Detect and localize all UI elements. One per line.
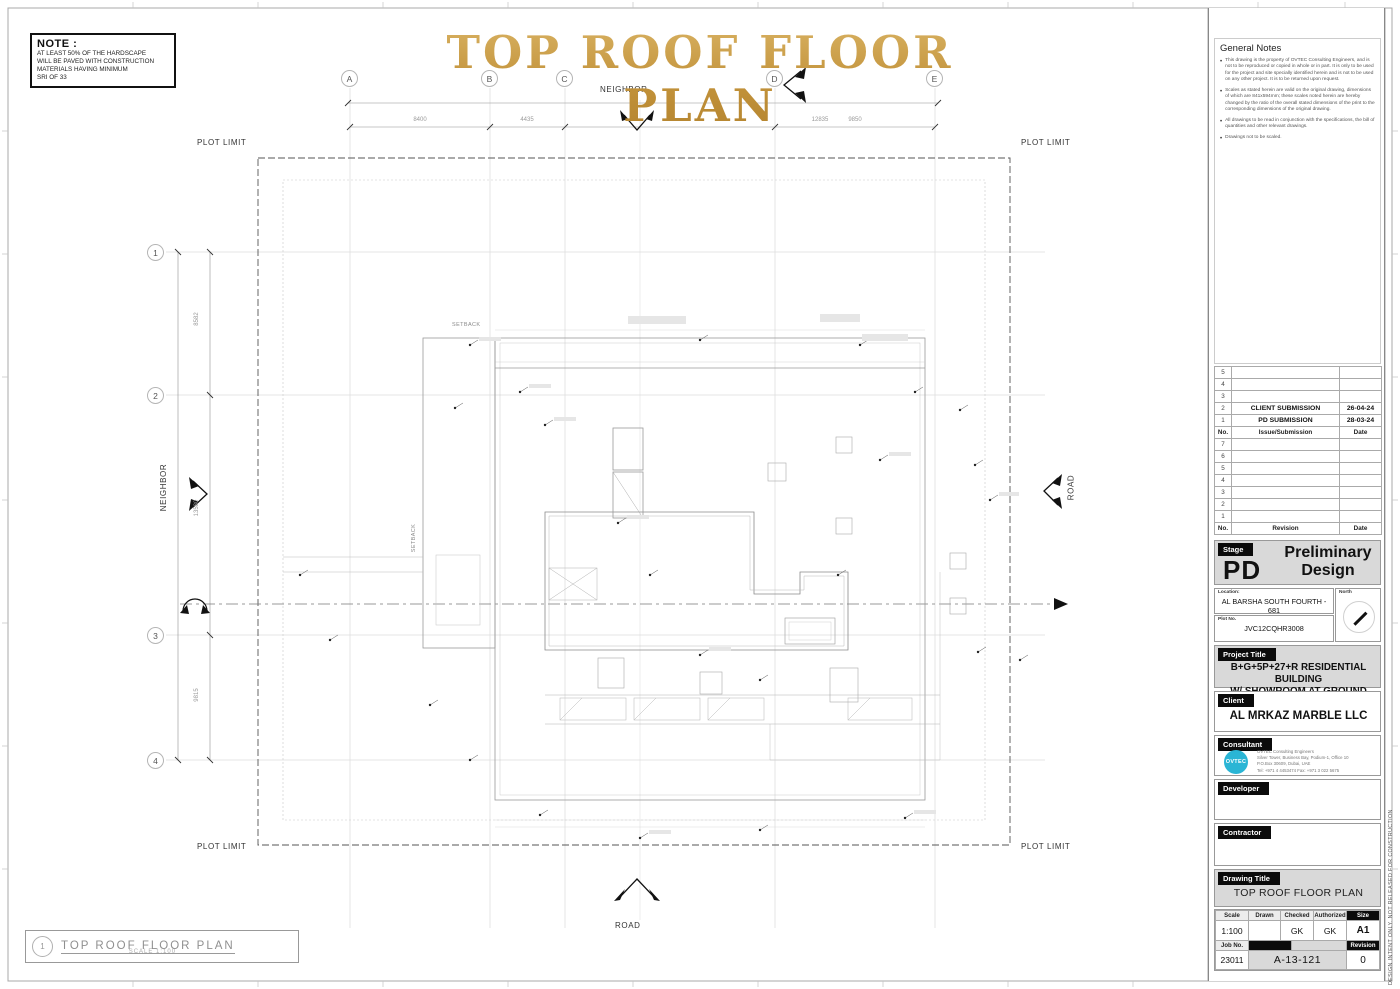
setback-label-top: SETBACK <box>452 322 480 328</box>
drawing-view-scale: SCALE 1:100 <box>129 949 176 955</box>
general-note: Scales as stated herein are valid on the… <box>1225 88 1375 114</box>
table-row: 4 <box>1215 475 1382 487</box>
annotation-marks <box>299 314 1028 839</box>
table-row: 5 <box>1215 463 1382 475</box>
job-no-value: 23011 <box>1215 950 1249 970</box>
stage-code: PD <box>1223 555 1261 586</box>
table-row: 1PD SUBMISSION28-03-24 <box>1215 415 1382 427</box>
sheet-frame <box>8 8 1392 981</box>
plot-limit-label: PLOT LIMIT <box>197 842 246 851</box>
dimension-label: 9815 <box>194 670 200 720</box>
dimension-ticks <box>175 100 941 763</box>
contractor-panel: Contractor <box>1214 823 1381 866</box>
plot-limit-label: PLOT LIMIT <box>1021 138 1070 147</box>
checked-value: GK <box>1280 920 1314 941</box>
table-header-row: No.RevisionDate <box>1215 523 1382 535</box>
plot-limit-boundary <box>258 158 1010 845</box>
table-row: 2 <box>1215 499 1382 511</box>
table-row: 3 <box>1215 391 1382 403</box>
note-line: MATERIALS HAVING MINIMUM <box>37 66 169 74</box>
drawing-sheet: NOTE : AT LEAST 50% OF THE HARDSCAPE WIL… <box>0 0 1400 989</box>
north-panel: North <box>1335 588 1381 642</box>
stage-panel: Stage PD Preliminary Design <box>1214 540 1381 585</box>
general-note: This drawing is the property of OVTEC Co… <box>1225 58 1375 84</box>
sheet-info-table: Scale Drawn Checked Authorized Size 1:10… <box>1214 909 1381 971</box>
note-heading: NOTE : <box>37 38 169 50</box>
location-label: Location: <box>1218 590 1330 595</box>
table-row: 6 <box>1215 451 1382 463</box>
table-row: 7 <box>1215 439 1382 451</box>
north-compass-icon <box>1343 601 1375 633</box>
plot-limit-label: PLOT LIMIT <box>1021 842 1070 851</box>
revision-table: 7 6 5 4 3 2 1 No.RevisionDate <box>1214 438 1382 535</box>
plot-value: JVC12CQHR3008 <box>1218 624 1330 633</box>
neighbor-label-left: NEIGHBOR <box>159 464 168 511</box>
drawn-value <box>1248 920 1281 941</box>
general-note: Drawings not to be scaled. <box>1225 135 1282 143</box>
dimension-lines <box>178 103 938 760</box>
table-row: 4 <box>1215 379 1382 391</box>
grid-bubble-2: 2 <box>147 387 164 404</box>
table-header-row: No.Issue/SubmissionDate <box>1215 427 1382 439</box>
note-line: SRI OF 33 <box>37 74 169 82</box>
frame-ticks <box>2 2 1398 987</box>
title-block: General Notes This drawing is the proper… <box>1208 8 1385 981</box>
ovtec-logo-icon: OVTEC <box>1224 750 1248 774</box>
table-row: 5 <box>1215 367 1382 379</box>
disclaimer-text: DESIGN INTENT ONLY. NOT RELEASED FOR CON… <box>1388 745 1399 985</box>
drawing-title-value: TOP ROOF FLOOR PLAN <box>1215 887 1382 899</box>
direction-arrows <box>189 67 1062 901</box>
north-label: North <box>1339 590 1377 595</box>
note-box: NOTE : AT LEAST 50% OF THE HARDSCAPE WIL… <box>30 33 176 88</box>
drawing-title-label: Drawing Title <box>1218 872 1280 885</box>
table-row: 3 <box>1215 487 1382 499</box>
dimension-label: 8582 <box>194 294 200 344</box>
setback-label-left: SETBACK <box>411 524 417 552</box>
plot-label: Plot No. <box>1218 617 1330 622</box>
table-row: 2CLIENT SUBMISSION26-04-24 <box>1215 403 1382 415</box>
project-title-panel: Project Title B+G+5P+27+R RESIDENTIAL BU… <box>1214 645 1381 688</box>
grid-bubble-4: 4 <box>147 752 164 769</box>
developer-panel: Developer <box>1214 779 1381 820</box>
detail-marker: 1 <box>32 936 53 957</box>
road-label-right: ROAD <box>1066 475 1075 501</box>
client-label: Client <box>1218 694 1254 707</box>
floor-plan-drawing <box>0 0 1400 989</box>
developer-label: Developer <box>1218 782 1269 795</box>
table-row: 1 <box>1215 511 1382 523</box>
drawing-no-value: A-13-121 <box>1248 950 1347 970</box>
contractor-label: Contractor <box>1218 826 1271 839</box>
general-note: All drawings to be read in conjunction w… <box>1225 118 1375 131</box>
scale-value: 1:100 <box>1215 920 1249 941</box>
issue-table: 5 4 3 2CLIENT SUBMISSION26-04-24 1PD SUB… <box>1214 366 1382 439</box>
stage-name: Preliminary Design <box>1277 544 1379 581</box>
note-line: WILL BE PAVED WITH CONSTRUCTION <box>37 58 169 66</box>
location-value: AL BARSHA SOUTH FOURTH - 681 <box>1218 597 1330 615</box>
drawing-title-panel: Drawing Title TOP ROOF FLOOR PLAN <box>1214 869 1381 907</box>
dimension-label: 13580 <box>194 483 200 533</box>
consultant-address: OVTEC Consulting Engineers Silver Tower,… <box>1257 749 1379 774</box>
grid-bubble-1: 1 <box>147 244 164 261</box>
revision-value: 0 <box>1346 950 1380 970</box>
page-title: TOP ROOF FLOOR PLAN <box>380 26 1020 132</box>
general-notes-heading: General Notes <box>1220 43 1375 54</box>
size-value: A1 <box>1346 920 1380 941</box>
drawing-view-label: 1 TOP ROOF FLOOR PLAN SCALE 1:100 <box>25 930 299 963</box>
client-panel: Client AL MRKAZ MARBLE LLC <box>1214 691 1381 732</box>
grid-lines <box>166 88 1045 928</box>
client-value: AL MRKAZ MARBLE LLC <box>1215 710 1382 722</box>
location-panel: Location: AL BARSHA SOUTH FOURTH - 681 <box>1214 588 1334 614</box>
grid-bubble-a: A <box>341 70 358 87</box>
note-line: AT LEAST 50% OF THE HARDSCAPE <box>37 50 169 58</box>
plot-limit-label: PLOT LIMIT <box>197 138 246 147</box>
building-outline <box>283 330 966 827</box>
general-notes: General Notes This drawing is the proper… <box>1214 38 1381 364</box>
road-label-bottom: ROAD <box>615 921 641 930</box>
grid-bubble-3: 3 <box>147 627 164 644</box>
plot-panel: Plot No. JVC12CQHR3008 <box>1214 615 1334 642</box>
consultant-panel: Consultant OVTEC OVTEC Consulting Engine… <box>1214 735 1381 776</box>
project-title-label: Project Title <box>1218 648 1276 661</box>
authorized-value: GK <box>1313 920 1347 941</box>
